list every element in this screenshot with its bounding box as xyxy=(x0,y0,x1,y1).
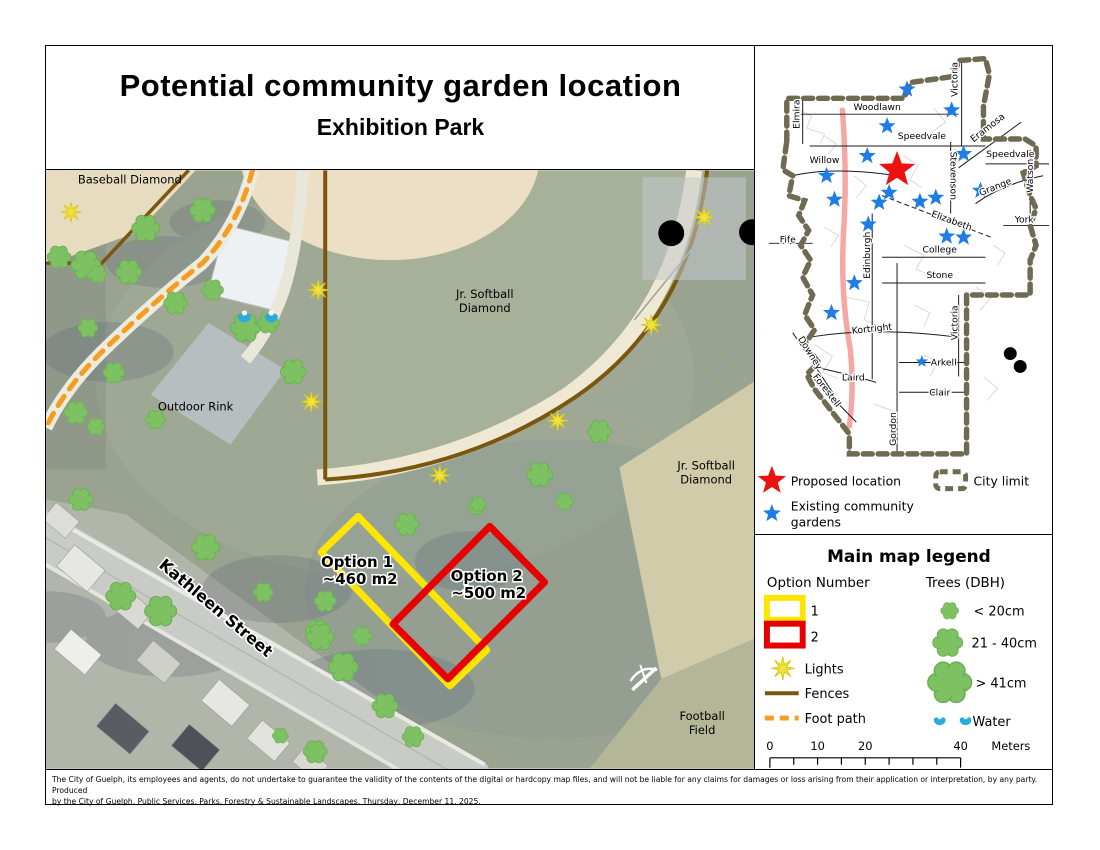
tree-icon xyxy=(587,421,611,443)
tree-icon xyxy=(314,591,336,611)
option2-legend-swatch xyxy=(767,624,803,646)
jr-softball-label: Jr. Softball xyxy=(455,287,514,301)
page: Potential community garden location Exhi… xyxy=(0,0,1100,850)
tree-small-legend-label: < 20cm xyxy=(974,605,1025,620)
tree-icon xyxy=(103,363,125,383)
light-icon xyxy=(547,410,568,431)
tree-icon xyxy=(132,215,160,241)
tree-icon xyxy=(78,319,98,337)
water-legend-icon xyxy=(934,717,946,725)
street-label: Willow xyxy=(810,155,840,166)
city-limit-legend-label: City limit xyxy=(974,474,1030,489)
tree-icon xyxy=(89,266,107,283)
existing-gardens-legend-label: gardens xyxy=(791,514,841,529)
baseball-diamond-label: Baseball Diamond xyxy=(78,172,182,186)
proposed-location-legend-label: Proposed location xyxy=(791,474,901,489)
foot-path-legend-label: Foot path xyxy=(805,712,866,727)
main-map-canvas: Baseball Diamond Jr. Softball Diamond Ou… xyxy=(46,170,754,769)
tree-icon xyxy=(556,493,574,510)
football-field-label: Football xyxy=(679,709,724,723)
tree-icon xyxy=(69,488,93,510)
lights-legend-label: Lights xyxy=(805,662,844,677)
tree-icon xyxy=(164,292,188,314)
tree-large-legend-icon xyxy=(928,662,972,702)
water-legend-icon xyxy=(960,717,972,725)
street-label: Victoria xyxy=(950,305,961,340)
tree-small-legend-icon xyxy=(941,603,959,619)
water-legend-label: Water xyxy=(973,715,1012,730)
street-label: Victoria xyxy=(950,62,961,97)
fences-legend-label: Fences xyxy=(805,687,850,702)
tree-icon xyxy=(306,624,334,650)
tree-medium-legend-icon xyxy=(933,629,963,656)
street-label: Clair xyxy=(929,387,950,398)
disclaimer: The City of Guelph, its employees and ag… xyxy=(45,769,1053,805)
black-dot-marker xyxy=(1004,347,1017,360)
tree-icon xyxy=(87,418,105,435)
tree-icon xyxy=(116,260,142,284)
light-icon xyxy=(694,207,715,228)
black-dot-marker xyxy=(658,220,684,246)
street-label: Fife xyxy=(780,234,796,245)
tree-icon xyxy=(372,694,398,718)
inset-map-canvas: Elmira Woodlawn Victoria Speedvale Eramo… xyxy=(755,46,1051,534)
jr-softball-label: Diamond xyxy=(459,301,511,315)
option2-legend-label: 2 xyxy=(811,631,819,646)
street-label: Speedvale xyxy=(898,131,947,142)
lights-legend-icon xyxy=(771,657,794,680)
tree-icon xyxy=(192,534,220,560)
street-label: College xyxy=(923,244,958,255)
light-icon xyxy=(61,202,82,223)
existing-gardens-legend-label: Existing community xyxy=(791,499,914,514)
trees-header: Trees (DBH) xyxy=(925,576,1005,591)
tree-icon xyxy=(253,583,273,601)
tree-icon xyxy=(145,596,177,625)
street-label: Elmira xyxy=(792,100,803,129)
light-icon xyxy=(430,465,451,486)
street-label: Stone xyxy=(926,270,953,281)
option2-area-label: ~500 m2 xyxy=(451,584,526,602)
tree-medium-legend-label: 21 - 40cm xyxy=(972,637,1037,652)
street-label: Stevenson xyxy=(948,152,959,201)
scale-bar: 0 10 20 40 Meters xyxy=(766,739,1030,768)
street-label: Woodlawn xyxy=(854,102,901,113)
black-dot-marker xyxy=(1014,360,1027,373)
page-title: Potential community garden location xyxy=(46,68,755,104)
street-label: Arkell xyxy=(931,357,957,368)
main-map: Baseball Diamond Jr. Softball Diamond Ou… xyxy=(45,169,756,771)
tree-icon xyxy=(280,360,306,384)
tree-icon xyxy=(190,198,216,222)
tree-icon xyxy=(47,246,71,268)
scale-unit-label: Meters xyxy=(991,739,1030,753)
tree-icon xyxy=(272,728,288,743)
street-label: Watson xyxy=(1025,159,1036,193)
football-field-label: Field xyxy=(689,723,715,737)
page-subtitle: Exhibition Park xyxy=(46,114,755,141)
option2-label: Option 2 xyxy=(451,567,523,585)
tree-icon xyxy=(402,727,424,747)
tree-icon xyxy=(106,582,136,610)
tree-icon xyxy=(303,741,327,763)
street-label: Speedvale xyxy=(986,149,1035,160)
street-label: York xyxy=(1014,214,1035,225)
light-icon xyxy=(641,315,662,336)
scale-tick-label: 40 xyxy=(953,739,968,753)
title-block: Potential community garden location Exhi… xyxy=(45,45,756,171)
tree-icon xyxy=(352,627,372,645)
jr-softball-2-label: Diamond xyxy=(680,472,732,486)
tree-icon xyxy=(202,280,224,300)
street-label: Laird xyxy=(842,372,865,383)
disclaimer-line: by the City of Guelph, Public Services, … xyxy=(52,796,1046,807)
tree-large-legend-label: > 41cm xyxy=(976,676,1027,691)
tree-icon xyxy=(395,513,419,535)
scale-tick-label: 0 xyxy=(766,739,773,753)
legend-title: Main map legend xyxy=(827,546,991,566)
overlay-rect xyxy=(642,177,746,280)
street-label: Edinburgh xyxy=(862,232,873,279)
option1-label: Option 1 xyxy=(321,553,393,571)
option1-area-label: ~460 m2 xyxy=(323,570,398,588)
scale-tick-label: 10 xyxy=(810,739,825,753)
street-label: Gordon xyxy=(888,412,899,446)
tree-icon xyxy=(64,402,88,424)
tree-icon xyxy=(527,463,553,487)
option1-legend-label: 1 xyxy=(811,605,819,620)
option1-legend-swatch xyxy=(767,598,803,620)
tree-icon xyxy=(470,497,486,512)
disclaimer-line: The City of Guelph, its employees and ag… xyxy=(52,774,1046,796)
light-icon xyxy=(308,280,329,301)
main-map-legend: Main map legend Option Number 1 2 Lights… xyxy=(754,534,1053,771)
tree-icon xyxy=(328,653,358,681)
jr-softball-2-label: Jr. Softball xyxy=(676,459,735,473)
scale-tick-label: 20 xyxy=(858,739,873,753)
legend-canvas: Main map legend Option Number 1 2 Lights… xyxy=(755,535,1051,769)
option-number-header: Option Number xyxy=(767,576,870,591)
light-icon xyxy=(301,391,322,412)
inset-map: Elmira Woodlawn Victoria Speedvale Eramo… xyxy=(754,45,1053,536)
outdoor-rink-label: Outdoor Rink xyxy=(158,400,234,414)
